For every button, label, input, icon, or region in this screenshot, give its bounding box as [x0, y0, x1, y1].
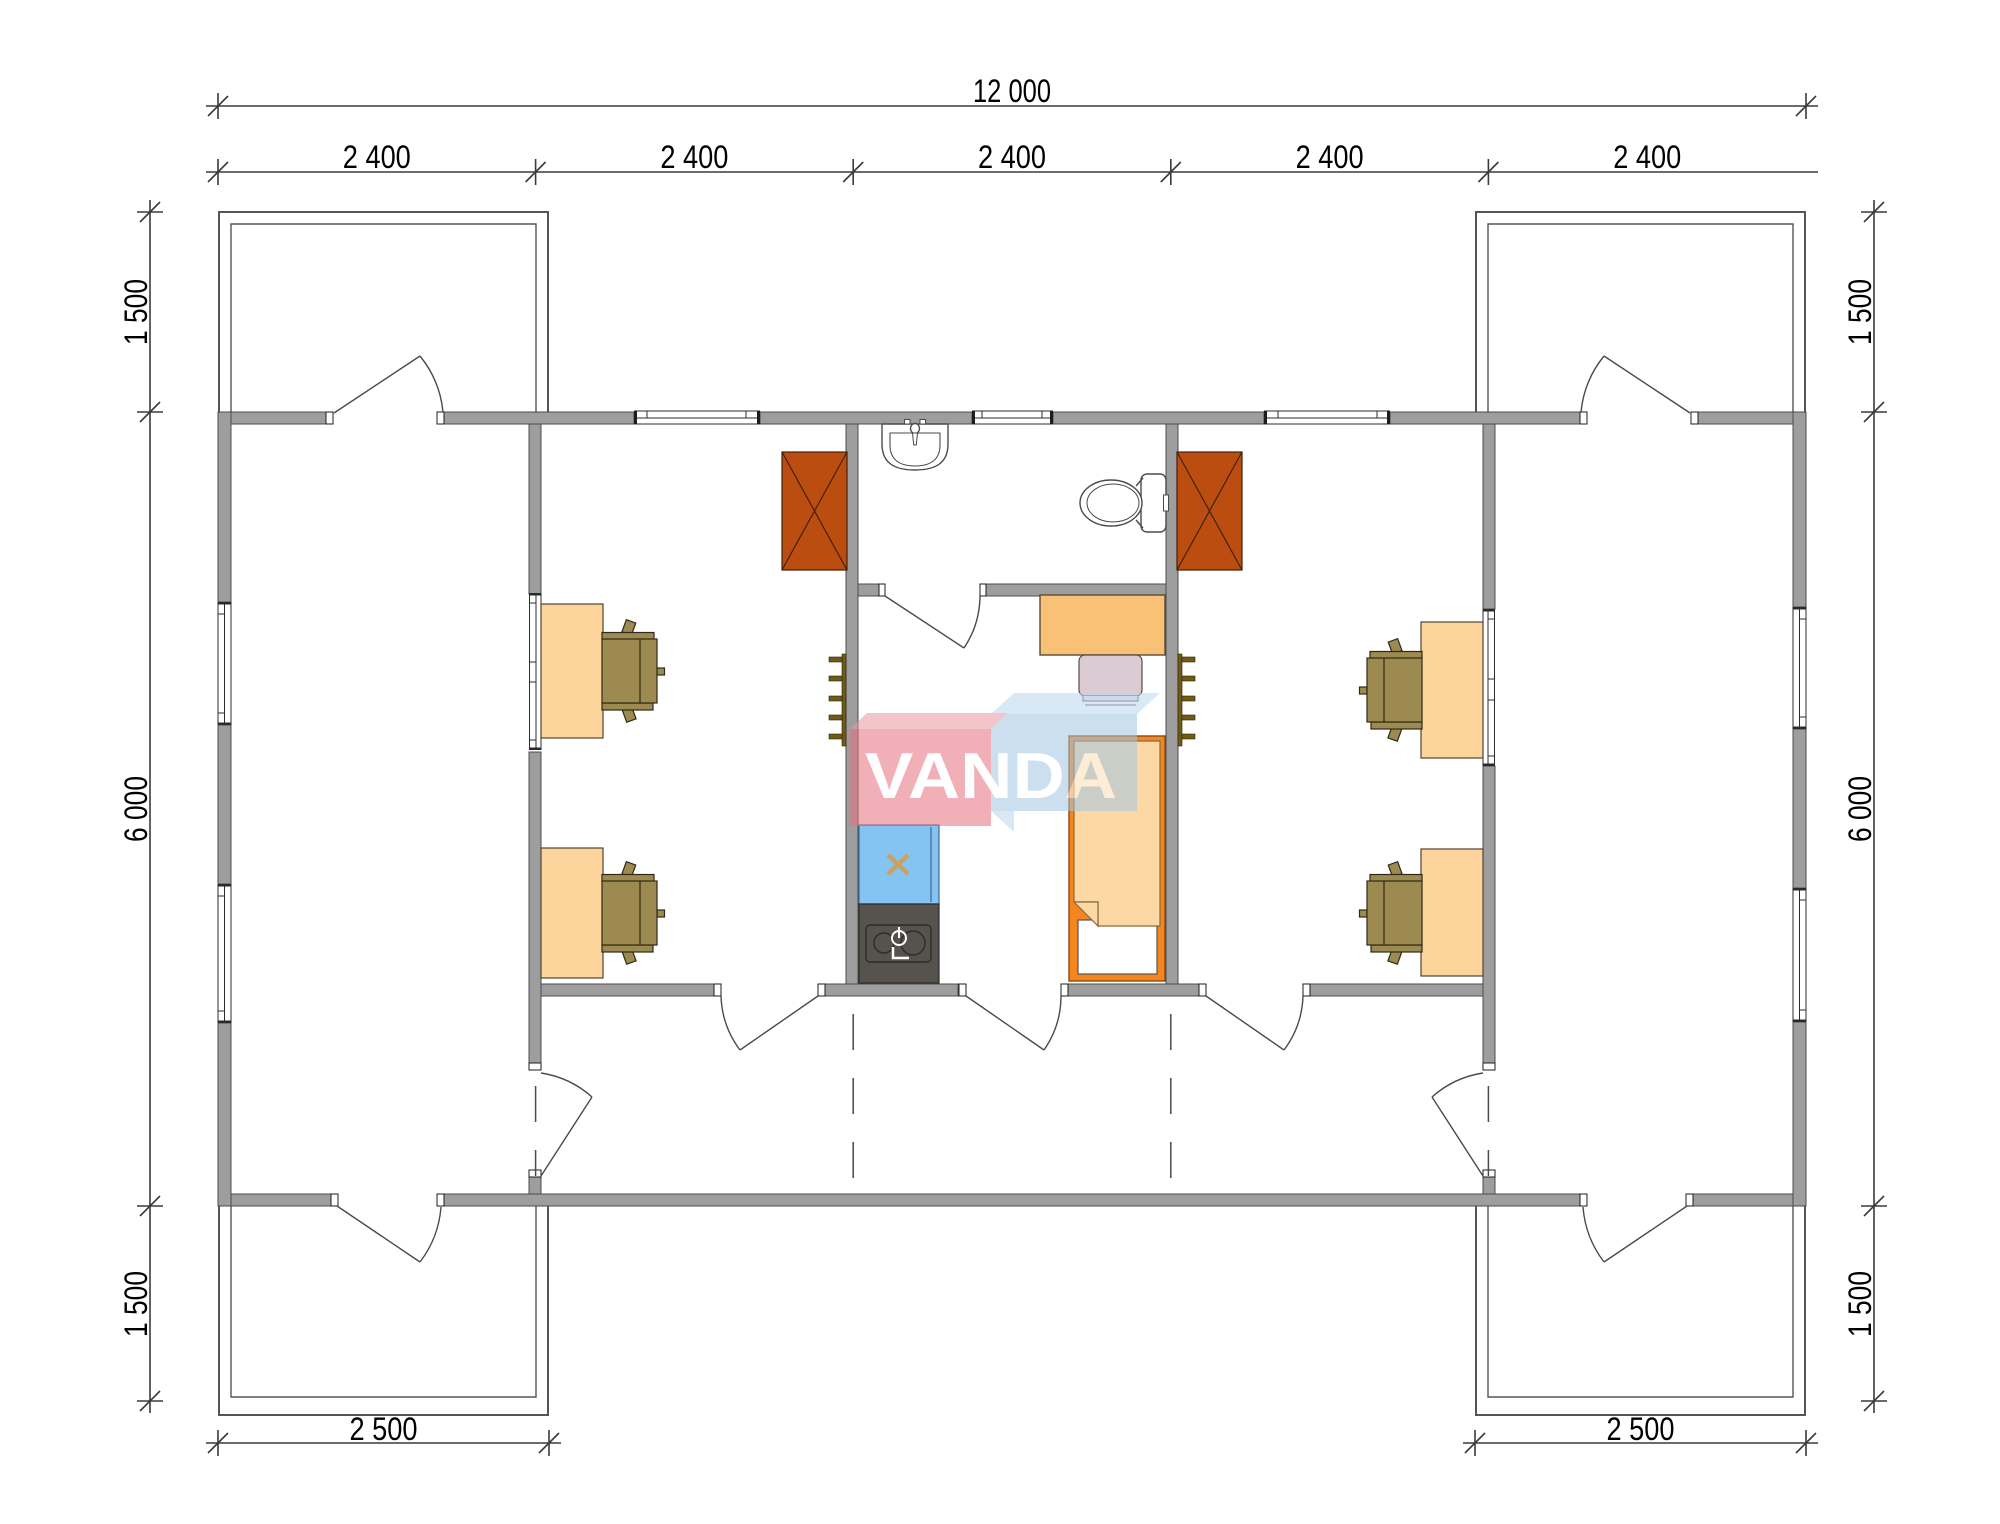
svg-text:1 500: 1 500	[118, 1271, 154, 1337]
svg-text:6 000: 6 000	[1842, 776, 1878, 842]
svg-text:2 500: 2 500	[1607, 1411, 1675, 1447]
svg-text:2 400: 2 400	[978, 139, 1046, 175]
svg-text:1 500: 1 500	[1842, 279, 1878, 345]
svg-text:1 500: 1 500	[118, 279, 154, 345]
svg-text:2 400: 2 400	[1296, 139, 1364, 175]
svg-text:VANDA: VANDA	[865, 739, 1117, 812]
svg-text:6 000: 6 000	[118, 776, 154, 842]
svg-text:1 500: 1 500	[1842, 1271, 1878, 1337]
svg-text:2 500: 2 500	[350, 1411, 418, 1447]
svg-text:2 400: 2 400	[343, 139, 411, 175]
svg-text:2 400: 2 400	[1613, 139, 1681, 175]
svg-text:12 000: 12 000	[973, 73, 1051, 109]
svg-text:2 400: 2 400	[660, 139, 728, 175]
